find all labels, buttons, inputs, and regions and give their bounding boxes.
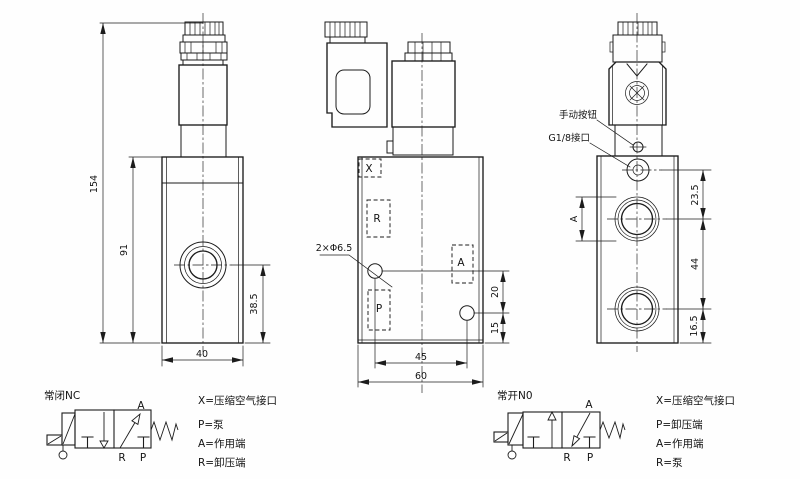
side-cable-gland xyxy=(185,22,223,35)
side-valve-body xyxy=(162,157,243,343)
dim-60-label: 60 xyxy=(415,371,427,382)
dim-165-label: 16.5 xyxy=(689,315,700,336)
valve-drawing-svg: 154 91 38.5 40 xyxy=(0,0,800,479)
nc-port-r-label: R xyxy=(118,452,125,464)
no-section: 常开N0 A R P X=压 xyxy=(494,389,735,469)
connector-window xyxy=(336,70,370,114)
nc-title: 常闭NC xyxy=(44,389,80,402)
no-manual-override-circle xyxy=(508,451,516,459)
front-port-boxes: X R A P xyxy=(359,159,473,330)
no-port-a-label: A xyxy=(585,399,593,411)
no-legend-line-0: X=压缩空气接口 xyxy=(656,394,735,407)
right-dimensions: A 23.5 44 16.5 xyxy=(569,170,711,343)
right-callouts: 手动按钮 G1/8接口 xyxy=(548,109,633,167)
dim-a-label: A xyxy=(569,215,580,222)
side-view: 154 91 38.5 40 xyxy=(89,13,270,366)
manual-button-callout: 手动按钮 xyxy=(559,109,598,121)
nc-legend-line-3: R=卸压端 xyxy=(198,456,246,469)
nc-manual-override-circle xyxy=(59,451,67,459)
right-view: 手动按钮 G1/8接口 A 23.5 44 16.5 xyxy=(548,13,711,352)
port-label-a: A xyxy=(457,257,465,269)
port-label-p: P xyxy=(376,303,382,315)
front-din-connector xyxy=(325,22,387,127)
dim-45-label: 45 xyxy=(415,352,427,363)
nc-port-a-label: A xyxy=(137,400,145,412)
mounting-hole-2 xyxy=(460,306,474,320)
nc-symbol: A R P xyxy=(47,400,178,464)
right-cable-gland xyxy=(610,22,665,62)
nc-legend-line-0: X=压缩空气接口 xyxy=(198,394,277,407)
front-mounting-holes: 2×Φ6.5 xyxy=(316,243,509,320)
no-symbol: A R P xyxy=(494,399,625,464)
port-label-r: R xyxy=(373,213,380,225)
no-legend-line-1: P=卸压端 xyxy=(656,418,703,431)
dim-44-label: 44 xyxy=(690,258,701,270)
nc-section: 常闭NC A R P X=压 xyxy=(44,389,277,469)
no-legend-line-3: R=泵 xyxy=(656,457,683,469)
no-legend: X=压缩空气接口 P=卸压端 A=作用端 R=泵 xyxy=(656,394,735,469)
dim-port-height-label: 38.5 xyxy=(249,293,260,314)
port-label-x: X xyxy=(365,163,372,175)
holes-callout: 2×Φ6.5 xyxy=(316,243,353,254)
side-connector-rings xyxy=(180,35,227,65)
nc-legend-line-1: P=泵 xyxy=(198,419,224,431)
nc-port-p-label: P xyxy=(140,452,146,464)
no-legend-line-2: A=作用端 xyxy=(656,437,704,450)
front-dimensions: 20 15 45 60 xyxy=(358,271,509,387)
g18-port-callout: G1/8接口 xyxy=(548,132,590,144)
no-port-p-label: P xyxy=(587,452,593,464)
nc-legend-line-2: A=作用端 xyxy=(198,437,246,450)
dim-15-label: 15 xyxy=(490,322,501,334)
no-title: 常开N0 xyxy=(497,389,533,402)
dim-20-label: 20 xyxy=(490,286,501,298)
dim-body-height-label: 91 xyxy=(119,244,130,256)
front-coil xyxy=(387,42,455,155)
no-port-r-label: R xyxy=(563,452,570,464)
nc-legend: X=压缩空气接口 P=泵 A=作用端 R=卸压端 xyxy=(198,394,277,469)
dim-235-label: 23.5 xyxy=(690,184,701,205)
dim-overall-height-label: 154 xyxy=(89,175,100,193)
technical-drawing-canvas: 154 91 38.5 40 xyxy=(0,0,800,479)
front-view: X R A P 2×Φ6.5 20 15 45 60 xyxy=(316,22,509,393)
dim-width-label: 40 xyxy=(196,349,208,360)
front-valve-body xyxy=(358,157,483,343)
right-coil xyxy=(609,62,666,156)
right-valve-body xyxy=(597,156,678,343)
